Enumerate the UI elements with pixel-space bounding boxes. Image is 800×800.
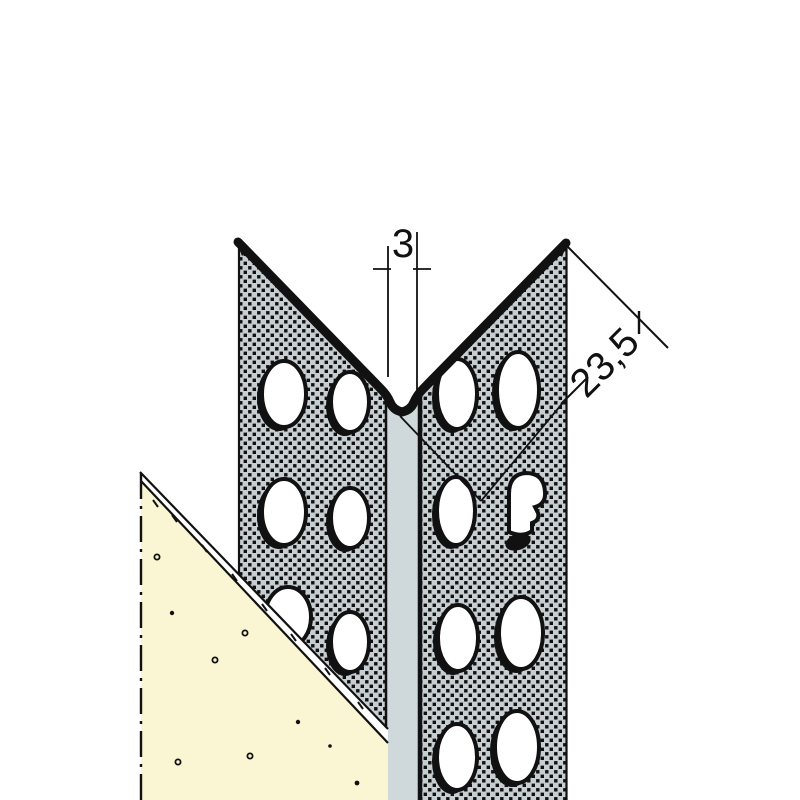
corner-strip (386, 398, 418, 800)
corner-bead-drawing: 3 23,5 (0, 0, 800, 800)
technical-drawing-canvas: 3 23,5 (0, 0, 800, 800)
dimension-slot-value: 3 (392, 222, 414, 266)
corner-strip-face (386, 398, 418, 800)
